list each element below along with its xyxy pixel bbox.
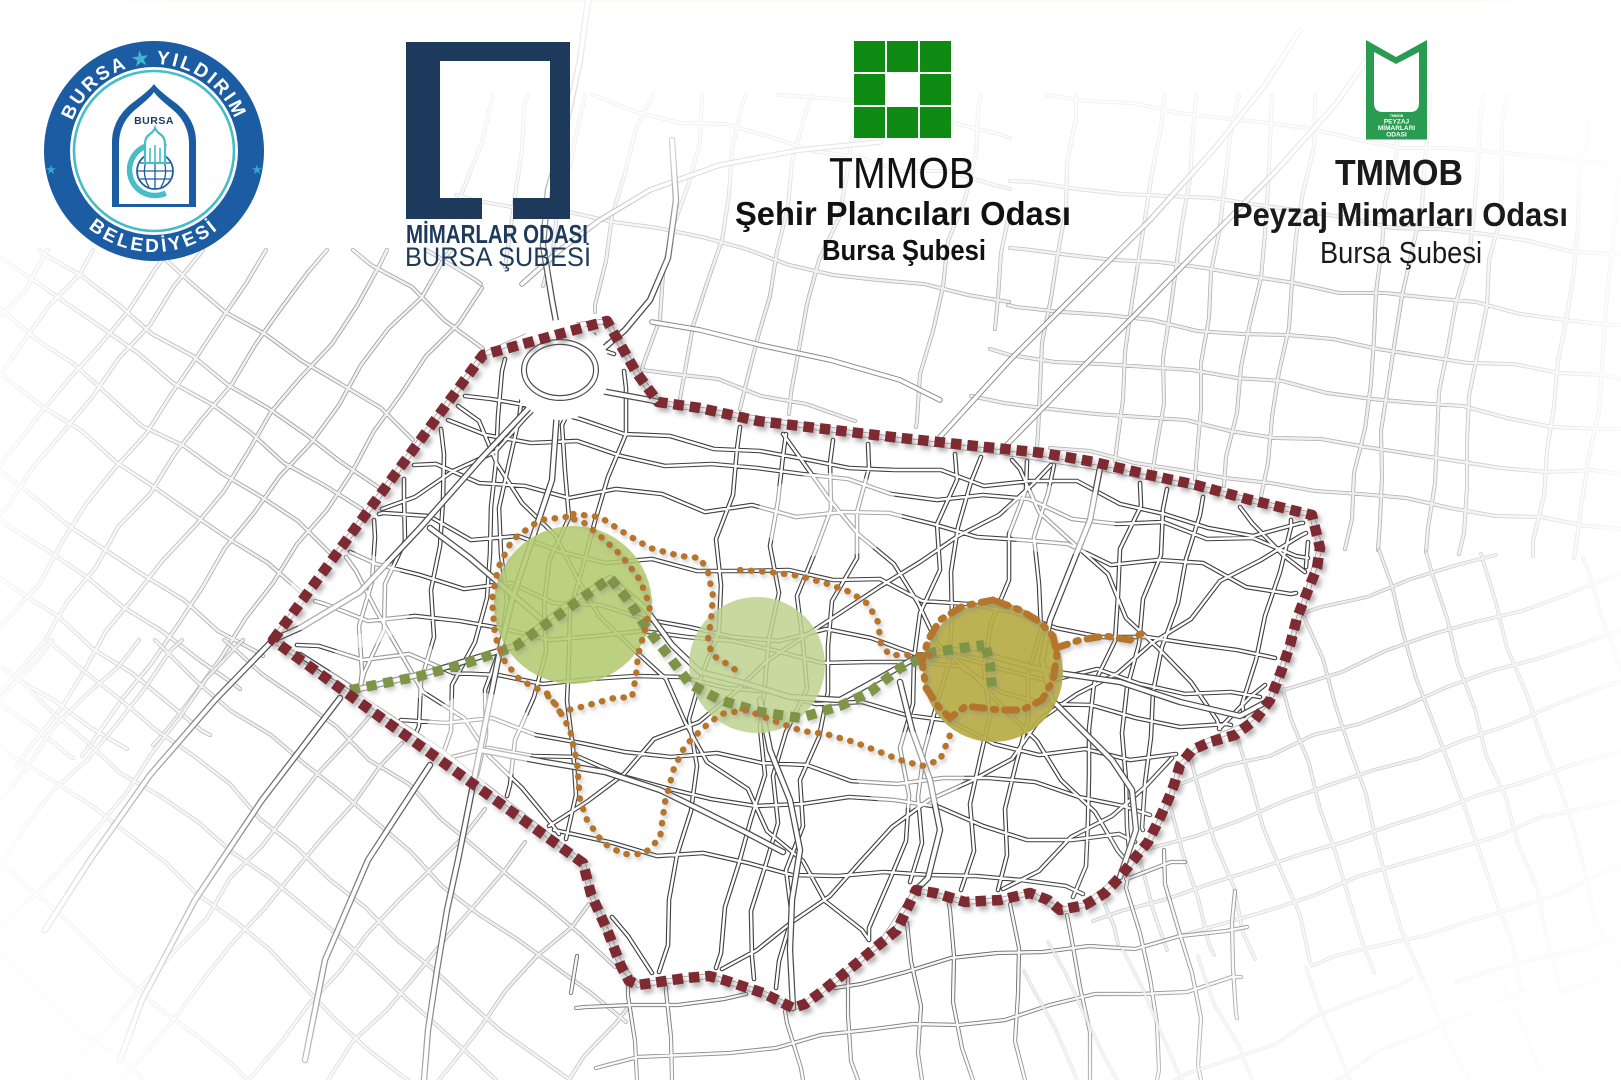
svg-text:Şehir Plancıları Odası: Şehir Plancıları Odası	[735, 195, 1071, 232]
svg-text:Bursa Şubesi: Bursa Şubesi	[822, 235, 986, 267]
svg-text:TMMOB: TMMOB	[1390, 114, 1404, 118]
svg-text:BURSA ŞUBESİ: BURSA ŞUBESİ	[405, 241, 591, 272]
svg-text:BURSA: BURSA	[134, 115, 174, 127]
svg-text:TMMOB: TMMOB	[1335, 152, 1463, 193]
svg-text:ODASI: ODASI	[1386, 132, 1407, 139]
svg-text:Bursa Şubesi: Bursa Şubesi	[1320, 235, 1482, 270]
svg-text:★: ★	[45, 162, 57, 177]
svg-text:TMMOB: TMMOB	[829, 149, 975, 198]
svg-text:Peyzaj Mimarları Odası: Peyzaj Mimarları Odası	[1232, 196, 1568, 233]
svg-text:★: ★	[251, 162, 263, 177]
